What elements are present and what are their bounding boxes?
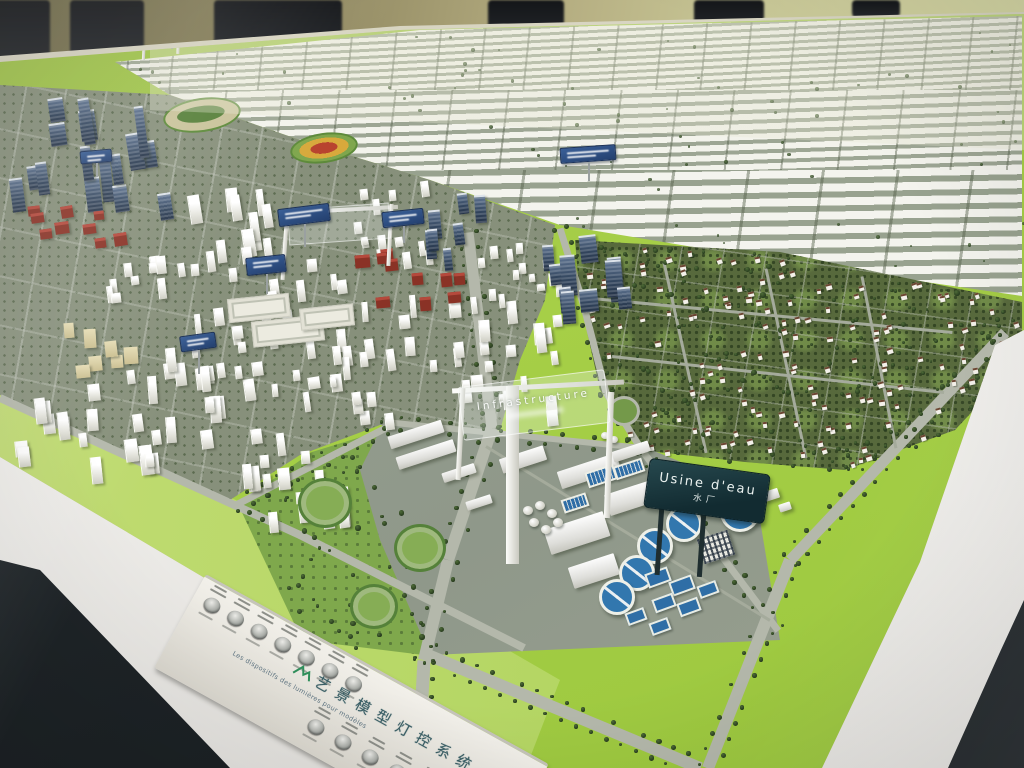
district-sign-text-blur — [389, 218, 409, 222]
storage-tank — [553, 518, 563, 527]
tree — [954, 290, 959, 295]
building-red-roof — [354, 254, 370, 268]
tree — [602, 356, 606, 360]
tree — [316, 604, 320, 608]
tree — [302, 528, 307, 533]
villa-house — [887, 390, 893, 397]
tree — [358, 465, 362, 469]
tree — [727, 449, 732, 454]
tree — [765, 641, 769, 645]
control-button — [225, 608, 247, 629]
villa-house — [970, 298, 975, 304]
tree — [742, 573, 747, 578]
tree — [908, 306, 911, 309]
tree — [776, 281, 780, 285]
tree — [455, 560, 460, 565]
tree — [786, 390, 791, 395]
villa-house — [746, 297, 753, 303]
tower-blue-glass — [442, 247, 453, 271]
tree — [904, 435, 907, 438]
tree — [490, 670, 495, 675]
villa-house — [968, 378, 975, 385]
tree — [762, 375, 766, 379]
building-white — [366, 392, 376, 408]
villa-house — [972, 367, 978, 373]
tree — [782, 390, 786, 394]
tree — [810, 343, 813, 346]
tree — [676, 369, 680, 373]
tree — [513, 699, 517, 703]
building-beige — [124, 346, 139, 364]
villa-house — [754, 256, 760, 263]
tower-blue-glass — [561, 291, 577, 325]
tree — [845, 448, 849, 452]
tree — [531, 148, 535, 152]
building-white — [300, 450, 310, 463]
tree — [297, 609, 302, 614]
tree — [527, 441, 532, 446]
building-beige — [64, 322, 75, 338]
tower-blue-glass — [427, 228, 438, 251]
building-white — [78, 433, 88, 448]
tree — [604, 737, 609, 742]
building-beige — [75, 364, 90, 378]
storage-tank — [547, 509, 557, 518]
park-ring-garden — [350, 584, 398, 629]
tree — [435, 643, 438, 646]
building-red-roof — [93, 210, 104, 220]
tree — [702, 250, 706, 254]
building-white — [268, 512, 279, 534]
tree — [796, 561, 800, 565]
tree — [849, 368, 853, 372]
villa-house — [794, 316, 800, 323]
control-button — [201, 595, 223, 616]
tree — [721, 326, 725, 330]
tree — [896, 456, 900, 460]
tree — [482, 294, 486, 298]
tree — [439, 627, 444, 632]
villa-house — [665, 450, 671, 457]
building-white — [336, 279, 347, 294]
tree — [429, 589, 433, 593]
tree — [645, 299, 648, 302]
sign-post — [588, 162, 590, 181]
building-white — [305, 341, 315, 360]
tree — [775, 385, 779, 389]
building-white — [404, 337, 415, 357]
tree — [784, 593, 788, 597]
tree — [371, 439, 375, 443]
tree — [528, 705, 533, 710]
tree — [704, 353, 708, 357]
district-sign-text-blur — [567, 154, 596, 158]
building-white — [237, 342, 246, 354]
tree — [351, 573, 355, 577]
tree — [265, 493, 270, 498]
villa-house — [687, 251, 692, 258]
tree — [798, 411, 801, 414]
villa-house — [628, 432, 634, 438]
clarifier-tank — [599, 579, 635, 615]
district-sign-text-blur — [187, 342, 204, 346]
tree — [648, 178, 652, 182]
tree — [342, 471, 345, 474]
tree — [468, 313, 471, 316]
tree — [326, 463, 331, 468]
tree — [399, 510, 404, 515]
tree — [766, 264, 771, 269]
tree — [760, 292, 765, 297]
villa-house — [951, 379, 956, 386]
tree — [812, 451, 815, 454]
tree — [488, 462, 493, 467]
tree — [290, 466, 294, 470]
tree — [727, 737, 731, 741]
tree — [355, 525, 360, 530]
building-white — [164, 347, 176, 372]
villa-house — [781, 319, 786, 326]
tree — [983, 323, 987, 327]
tree — [840, 436, 844, 440]
building-white — [360, 189, 369, 201]
storage-tank — [529, 518, 539, 527]
district-sign-text-blur — [567, 150, 609, 155]
tree — [728, 416, 732, 420]
tree — [930, 420, 934, 424]
building-white — [516, 242, 524, 254]
district-sign-text-blur — [285, 214, 311, 219]
building-white — [470, 297, 478, 314]
tree — [309, 558, 312, 561]
villa-house — [741, 399, 747, 406]
building-red-roof — [447, 291, 461, 303]
villa-house — [825, 283, 832, 290]
tree — [758, 430, 762, 434]
tree — [810, 175, 814, 179]
tree — [260, 517, 264, 521]
tree — [466, 528, 470, 532]
district-sign-text-blur — [87, 159, 102, 162]
tree — [910, 366, 914, 370]
sign-post — [266, 274, 268, 294]
tree — [425, 606, 429, 610]
villa-house — [656, 287, 662, 293]
tree — [841, 285, 844, 288]
tree — [894, 289, 897, 292]
building-white — [234, 365, 242, 378]
tree — [908, 393, 912, 397]
villa-house — [879, 400, 886, 407]
villa-house — [866, 397, 873, 404]
villa-house — [639, 262, 645, 268]
villa-house — [961, 358, 966, 365]
district-sign — [79, 149, 112, 165]
tree — [682, 376, 686, 380]
storage-tank — [535, 501, 545, 510]
tree — [804, 528, 808, 532]
tower-blue-glass — [579, 289, 599, 314]
tree — [618, 363, 622, 367]
building-red-roof — [411, 273, 423, 286]
tree — [641, 366, 646, 371]
building-white — [519, 262, 527, 273]
tree — [946, 383, 950, 387]
tree — [236, 509, 240, 513]
building-red-roof — [440, 273, 452, 288]
tree — [974, 348, 978, 352]
tree — [854, 441, 857, 444]
tree — [901, 322, 906, 327]
villa-house — [667, 311, 672, 317]
tree — [476, 245, 479, 248]
tree — [664, 411, 668, 415]
villa-house — [825, 307, 830, 314]
tower-blue-glass — [578, 234, 598, 264]
building-white — [478, 258, 486, 268]
tree — [706, 396, 710, 400]
tree — [669, 396, 672, 399]
building-white — [123, 262, 133, 277]
villa-house — [727, 304, 732, 310]
tree — [936, 433, 941, 438]
tree — [591, 447, 596, 452]
building-white — [384, 413, 395, 431]
district-sign-text-blur — [187, 337, 209, 342]
building-white — [228, 267, 237, 282]
villa-house — [881, 366, 887, 372]
tree — [388, 565, 391, 568]
tree — [610, 387, 613, 390]
tree — [805, 390, 808, 393]
tree — [769, 430, 773, 434]
building-white — [536, 284, 544, 292]
building-white — [293, 369, 301, 380]
building-white — [398, 314, 410, 329]
tree — [475, 664, 479, 668]
tree — [740, 705, 745, 710]
building-white — [242, 464, 253, 489]
tree — [855, 389, 859, 393]
tree — [859, 336, 863, 340]
tree — [350, 621, 355, 626]
tree — [831, 460, 834, 463]
building-white — [512, 270, 519, 280]
villa-house — [845, 422, 851, 429]
tree — [906, 420, 911, 425]
villa-house — [720, 377, 726, 384]
tree — [641, 733, 646, 738]
villa-house — [757, 354, 763, 361]
building-beige — [83, 329, 96, 349]
tree — [980, 331, 984, 335]
building-white — [308, 376, 322, 390]
tree — [717, 715, 722, 720]
villa-house — [792, 334, 798, 340]
building-white — [86, 408, 98, 430]
tree — [808, 408, 812, 412]
tree — [783, 270, 786, 273]
building-red-roof — [113, 232, 127, 246]
tree — [656, 264, 660, 268]
building-red-roof — [60, 205, 74, 219]
building-white — [165, 416, 177, 443]
tree — [980, 163, 983, 166]
building-white — [306, 259, 317, 273]
tree — [694, 266, 699, 271]
tree — [717, 234, 719, 236]
tree — [742, 593, 747, 598]
tree — [139, 68, 142, 71]
tree — [492, 376, 496, 380]
tree — [447, 432, 452, 437]
sign-post — [198, 350, 200, 374]
tree — [552, 228, 557, 233]
tree — [400, 416, 403, 419]
tree — [732, 580, 737, 585]
tree — [753, 252, 757, 256]
tree — [581, 707, 585, 711]
control-button — [272, 634, 294, 655]
building-red-roof — [420, 297, 432, 312]
photo-city-scale-model: Infrastructure Usine d'eau 水厂 艺景模型灯控系统 L… — [0, 0, 1024, 768]
villa-house — [587, 273, 593, 279]
tree — [855, 408, 860, 413]
tree — [251, 501, 256, 506]
tree — [789, 294, 793, 298]
tree — [382, 521, 387, 526]
tree — [733, 560, 738, 565]
villa-house — [693, 428, 698, 435]
building-white — [87, 383, 101, 402]
tree — [968, 243, 972, 247]
tree — [287, 586, 291, 590]
tree — [752, 673, 756, 677]
villa-house — [707, 370, 714, 377]
tree — [740, 378, 745, 383]
villa-house — [874, 330, 879, 336]
storage-tank — [541, 525, 551, 534]
tree — [431, 659, 434, 662]
building-white — [260, 455, 271, 469]
tree — [474, 229, 478, 233]
building-white — [505, 301, 518, 325]
villa-house — [700, 377, 706, 384]
villa-house — [767, 447, 772, 454]
building-red-roof — [39, 228, 52, 240]
building-white — [528, 274, 535, 283]
tree — [380, 515, 384, 519]
tree — [992, 339, 996, 343]
tree — [649, 755, 654, 760]
tree — [941, 408, 945, 412]
building-white — [479, 320, 491, 343]
tree — [827, 504, 832, 509]
tree — [724, 160, 727, 163]
control-button — [359, 746, 381, 767]
building-white — [351, 392, 362, 406]
tree — [785, 344, 788, 347]
villa-house — [640, 316, 646, 322]
building-white — [480, 342, 490, 356]
tree — [804, 444, 808, 448]
building-white — [262, 474, 271, 489]
tree — [419, 634, 424, 639]
villa-house — [688, 315, 694, 322]
tree — [451, 577, 456, 582]
villa-house — [947, 321, 953, 327]
building-red-roof — [94, 237, 106, 248]
building-white — [199, 429, 213, 449]
building-beige — [88, 355, 103, 372]
villa-house — [782, 351, 789, 358]
villa-house — [601, 284, 606, 290]
villa-house — [800, 452, 805, 459]
tree — [837, 223, 840, 226]
tree — [848, 339, 851, 342]
tree — [778, 336, 781, 339]
building-white — [191, 264, 200, 277]
building-white — [498, 293, 506, 308]
building-white — [484, 360, 493, 372]
tree — [737, 305, 740, 308]
storage-tank — [523, 506, 533, 515]
tree — [671, 745, 676, 750]
tree — [454, 506, 459, 511]
tree — [876, 235, 880, 239]
building-white — [251, 361, 264, 377]
villa-house — [736, 285, 742, 292]
tree — [411, 584, 416, 589]
villa-house — [959, 344, 965, 351]
park-ring-garden — [298, 478, 352, 528]
tree — [724, 351, 729, 356]
tree — [696, 325, 699, 328]
tree — [672, 418, 676, 422]
villa-house — [760, 279, 767, 286]
building-beige — [105, 340, 119, 357]
tree — [723, 242, 725, 244]
tree — [657, 188, 660, 191]
tree — [934, 394, 937, 397]
building-white — [277, 468, 291, 491]
building-white — [144, 454, 154, 467]
building-white — [430, 359, 438, 371]
tree — [717, 357, 721, 361]
tree — [296, 583, 301, 588]
tree — [682, 398, 687, 403]
villa-house — [653, 427, 659, 433]
sign-post — [96, 163, 98, 177]
building-white — [204, 396, 214, 412]
tree — [851, 504, 855, 508]
tree — [355, 469, 360, 474]
control-button — [332, 731, 354, 752]
tree — [674, 451, 677, 454]
tree — [889, 430, 893, 434]
building-white — [110, 293, 121, 304]
tower-blue-glass — [617, 286, 632, 309]
tree — [884, 444, 887, 447]
villa-house — [827, 337, 834, 343]
tree — [284, 498, 287, 501]
building-white — [453, 341, 465, 358]
tree — [914, 445, 918, 449]
tree — [959, 323, 962, 326]
district-sign-text-blur — [389, 214, 417, 219]
tree — [761, 603, 765, 607]
tree — [668, 292, 673, 297]
